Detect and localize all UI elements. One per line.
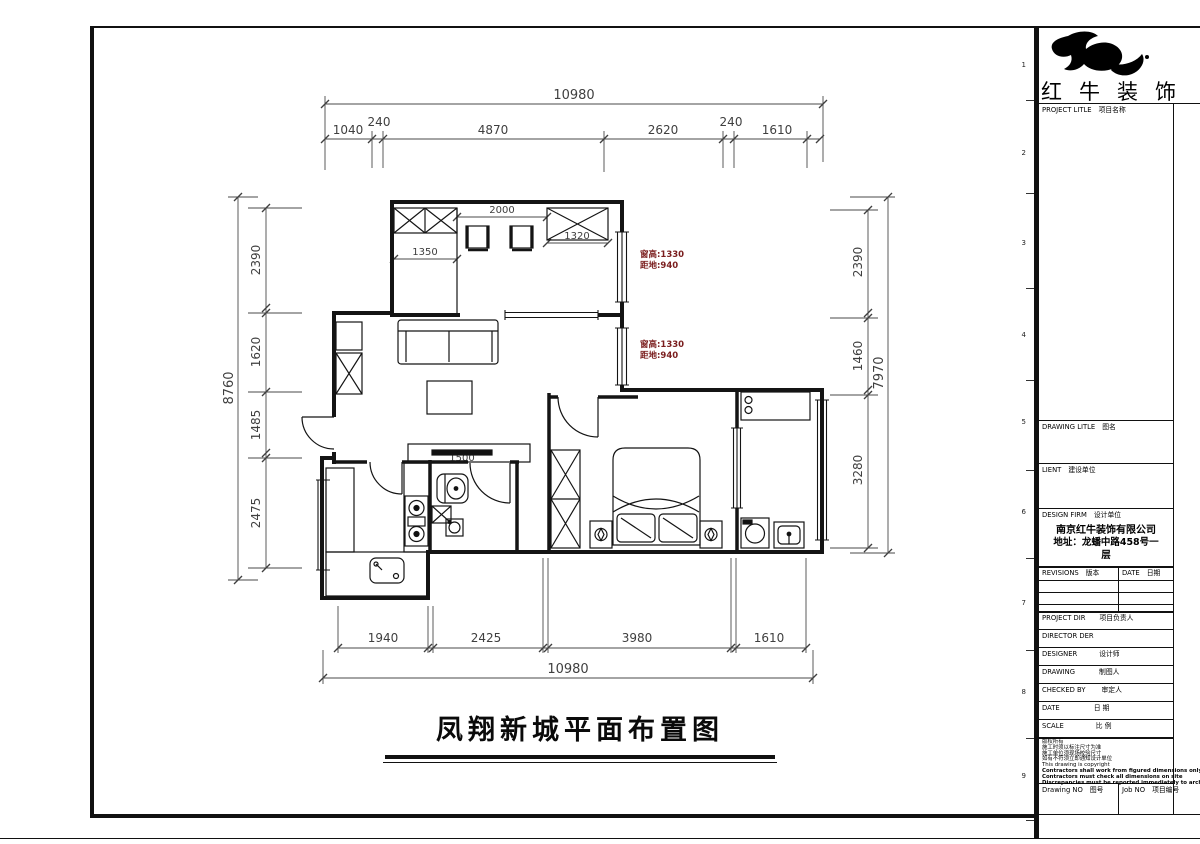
tb-divider bbox=[1118, 783, 1119, 814]
field-director: DIRECTOR DER bbox=[1042, 632, 1101, 640]
tb-line bbox=[1038, 719, 1174, 720]
field-designer: DESIGNER设计师 bbox=[1042, 650, 1120, 658]
dim-left-overall: 8760 bbox=[222, 371, 237, 404]
field-cn: 审定人 bbox=[1102, 686, 1122, 694]
edge-tick bbox=[1026, 650, 1034, 651]
titleblock-inner-divider bbox=[1173, 103, 1174, 814]
edge-tick bbox=[1026, 820, 1034, 821]
bathroom-door bbox=[470, 463, 510, 503]
row-marker: 3 bbox=[1014, 239, 1026, 247]
washing-machine bbox=[741, 518, 769, 548]
field-en: PROJECT LITLE bbox=[1042, 106, 1092, 114]
dim-top-4: 2620 bbox=[648, 123, 679, 137]
dim-bottom-overall: 10980 bbox=[547, 662, 588, 677]
shoe-cabinet bbox=[336, 322, 362, 350]
field-en: DATE bbox=[1122, 569, 1140, 577]
window-bedroom-balcony bbox=[731, 428, 743, 508]
edge-tick bbox=[1026, 558, 1034, 559]
cad-sheet: { "brand": {"name": "红牛装饰"}, "row_marker… bbox=[0, 0, 1200, 844]
tb-line bbox=[1038, 566, 1174, 568]
field-cn: 项目名称 bbox=[1099, 106, 1126, 114]
field-drawing-title: DRAWING LITLE图名 bbox=[1042, 423, 1116, 431]
edge-tick bbox=[1026, 100, 1034, 101]
window-note-lower-2: 距地:940 bbox=[640, 350, 678, 361]
field-cn: 比 例 bbox=[1096, 722, 1112, 730]
dim-bottom-2: 2425 bbox=[471, 631, 502, 645]
dim-left-1: 2390 bbox=[249, 245, 263, 276]
brand-logo bbox=[1040, 28, 1198, 76]
bedroom-wardrobe bbox=[551, 450, 580, 548]
chair-2 bbox=[510, 226, 533, 250]
frame-left bbox=[90, 26, 94, 818]
dim-top-overall: 10980 bbox=[553, 88, 594, 103]
tb-line bbox=[1038, 103, 1200, 104]
entry-door bbox=[302, 417, 334, 449]
field-en: DESIGN FIRM bbox=[1042, 511, 1087, 519]
field-cn: 日期 bbox=[1147, 569, 1161, 577]
field-en: Drawing NO bbox=[1042, 786, 1083, 794]
field-cn: 制图人 bbox=[1099, 668, 1119, 676]
edge-tick bbox=[1026, 738, 1034, 739]
caption-underline-thin bbox=[383, 762, 777, 763]
field-en: DRAWING LITLE bbox=[1042, 423, 1095, 431]
caption-underline-thick bbox=[385, 755, 775, 759]
dim-right-3: 3280 bbox=[851, 455, 865, 486]
field-scale: SCALE比 例 bbox=[1042, 722, 1112, 730]
bedroom-door bbox=[558, 397, 598, 437]
field-en: DESIGNER bbox=[1042, 650, 1077, 658]
dim-top-5: 240 bbox=[720, 115, 743, 129]
field-en: DIRECTOR DER bbox=[1042, 632, 1094, 640]
field-checked-by: CHECKED BY审定人 bbox=[1042, 686, 1122, 694]
field-en: REVISIONS bbox=[1042, 569, 1079, 577]
edge-tick bbox=[1026, 380, 1034, 381]
field-cn: 建设单位 bbox=[1068, 466, 1095, 474]
wardrobe-top-left bbox=[394, 208, 457, 313]
window-note-upper-1: 窗高:1330 bbox=[640, 249, 684, 260]
tb-line bbox=[1038, 701, 1174, 702]
field-drawing-by: DRAWING制图人 bbox=[1042, 668, 1119, 676]
kitchen-sink bbox=[370, 558, 404, 583]
balcony-counter bbox=[741, 392, 810, 420]
field-en: CHECKED BY bbox=[1042, 686, 1086, 694]
nightstand-left bbox=[590, 521, 612, 548]
window-lower-right bbox=[615, 328, 629, 385]
field-revisions: REVISIONS版本 bbox=[1042, 569, 1099, 577]
window-upper-right bbox=[615, 232, 629, 302]
field-date: DATE日 期 bbox=[1042, 704, 1109, 712]
row-marker: 5 bbox=[1014, 418, 1026, 426]
tb-line bbox=[1038, 629, 1174, 630]
tb-line bbox=[1038, 580, 1174, 581]
dim-right-overall: 7970 bbox=[872, 356, 887, 389]
field-en: PROJECT DIR bbox=[1042, 614, 1086, 622]
field-drawing-no: Drawing NO图号 bbox=[1042, 786, 1103, 794]
coffee-table bbox=[427, 381, 472, 414]
field-cn: 项目编号 bbox=[1152, 786, 1179, 794]
field-en: SCALE bbox=[1042, 722, 1064, 730]
laundry-sink bbox=[774, 522, 804, 548]
tall-cabinet bbox=[336, 353, 362, 394]
tb-line bbox=[1038, 592, 1174, 593]
titleblock-border bbox=[1034, 26, 1039, 838]
field-job-no: Job NO项目编号 bbox=[1122, 786, 1179, 794]
dim-inner-2000: 2000 bbox=[489, 205, 514, 216]
double-bed bbox=[613, 448, 700, 545]
tb-line bbox=[1038, 611, 1174, 613]
field-cn: 项目负责人 bbox=[1100, 614, 1134, 622]
field-cn: 图号 bbox=[1090, 786, 1104, 794]
edge-tick bbox=[1026, 288, 1034, 289]
field-en: DRAWING bbox=[1042, 668, 1075, 676]
dim-top-6: 1610 bbox=[762, 123, 793, 137]
field-cn: 设计单位 bbox=[1094, 511, 1121, 519]
frame-bottom bbox=[90, 814, 1038, 818]
row-marker: 2 bbox=[1014, 149, 1026, 157]
field-en: DATE bbox=[1042, 704, 1060, 712]
tb-line bbox=[1038, 508, 1174, 509]
wash-basin bbox=[446, 519, 463, 536]
field-en: LIENT bbox=[1042, 466, 1061, 474]
window-balcony bbox=[815, 400, 829, 540]
dim-bottom-1: 1940 bbox=[368, 631, 399, 645]
kitchen-door bbox=[370, 462, 402, 494]
firm-address-2: 层 bbox=[1040, 547, 1172, 561]
nightstand-right bbox=[700, 521, 722, 548]
field-client: LIENT建设单位 bbox=[1042, 466, 1096, 474]
tb-line bbox=[1038, 463, 1174, 464]
field-project-dir: PROJECT DIR项目负责人 bbox=[1042, 614, 1133, 622]
field-design-firm: DESIGN FIRM设计单位 bbox=[1042, 511, 1121, 519]
dim-left-4: 2475 bbox=[249, 498, 263, 529]
dim-inner-1350: 1350 bbox=[412, 247, 437, 258]
row-marker: 4 bbox=[1014, 331, 1026, 339]
dim-top-2: 240 bbox=[368, 115, 391, 129]
dim-left-3: 1485 bbox=[249, 410, 263, 441]
window-room-divider bbox=[505, 310, 598, 320]
field-date-col: DATE日期 bbox=[1122, 569, 1160, 577]
window-note-lower-1: 窗高:1330 bbox=[640, 339, 684, 350]
dim-right-1: 2390 bbox=[851, 247, 865, 278]
dim-bottom-3: 3980 bbox=[622, 631, 653, 645]
row-marker: 6 bbox=[1014, 508, 1026, 516]
window-note-upper-2: 距地:940 bbox=[640, 260, 678, 271]
drawing-caption: 凤翔新城平面布置图 bbox=[380, 708, 780, 747]
row-marker: 1 bbox=[1014, 61, 1026, 69]
tb-line bbox=[1038, 814, 1200, 815]
sofa bbox=[398, 320, 498, 364]
dim-top-3: 4870 bbox=[478, 123, 509, 137]
field-cn: 设计师 bbox=[1099, 650, 1119, 658]
dim-top-1: 1040 bbox=[333, 123, 364, 137]
window-annotations: 窗高:1330 距地:940 窗高:1330 距地:940 bbox=[640, 249, 684, 361]
dim-right-2: 1460 bbox=[851, 341, 865, 372]
field-cn: 日 期 bbox=[1094, 704, 1110, 712]
field-en: Job NO bbox=[1122, 786, 1145, 794]
brand-name: 红牛装饰 bbox=[1041, 76, 1200, 106]
row-marker: 9 bbox=[1014, 772, 1026, 780]
gas-stove bbox=[405, 496, 428, 546]
sheet-edge bbox=[0, 838, 1200, 839]
tb-line bbox=[1038, 420, 1174, 421]
toilet bbox=[437, 474, 468, 503]
field-cn: 图名 bbox=[1102, 423, 1116, 431]
chair-1 bbox=[466, 226, 489, 250]
firm-address-1: 地址：龙蟠中路458号一 bbox=[1040, 534, 1172, 548]
field-cn: 版本 bbox=[1086, 569, 1100, 577]
dim-bottom-4: 1610 bbox=[754, 631, 785, 645]
row-marker: 8 bbox=[1014, 688, 1026, 696]
tb-line bbox=[1038, 665, 1174, 666]
tb-line bbox=[1038, 647, 1174, 648]
edge-tick bbox=[1026, 470, 1034, 471]
tb-line bbox=[1038, 683, 1174, 684]
field-project-title: PROJECT LITLE项目名称 bbox=[1042, 106, 1126, 114]
row-marker: 7 bbox=[1014, 599, 1026, 607]
edge-tick bbox=[1026, 193, 1034, 194]
tb-line bbox=[1038, 604, 1174, 605]
copyright-notes: 版权所有 施工时须以标注尺寸为准 施工单位须现场校验尺寸 如有不符须立即通知设计… bbox=[1042, 740, 1200, 786]
tb-divider bbox=[1118, 566, 1119, 611]
dim-left-2: 1620 bbox=[249, 337, 263, 368]
